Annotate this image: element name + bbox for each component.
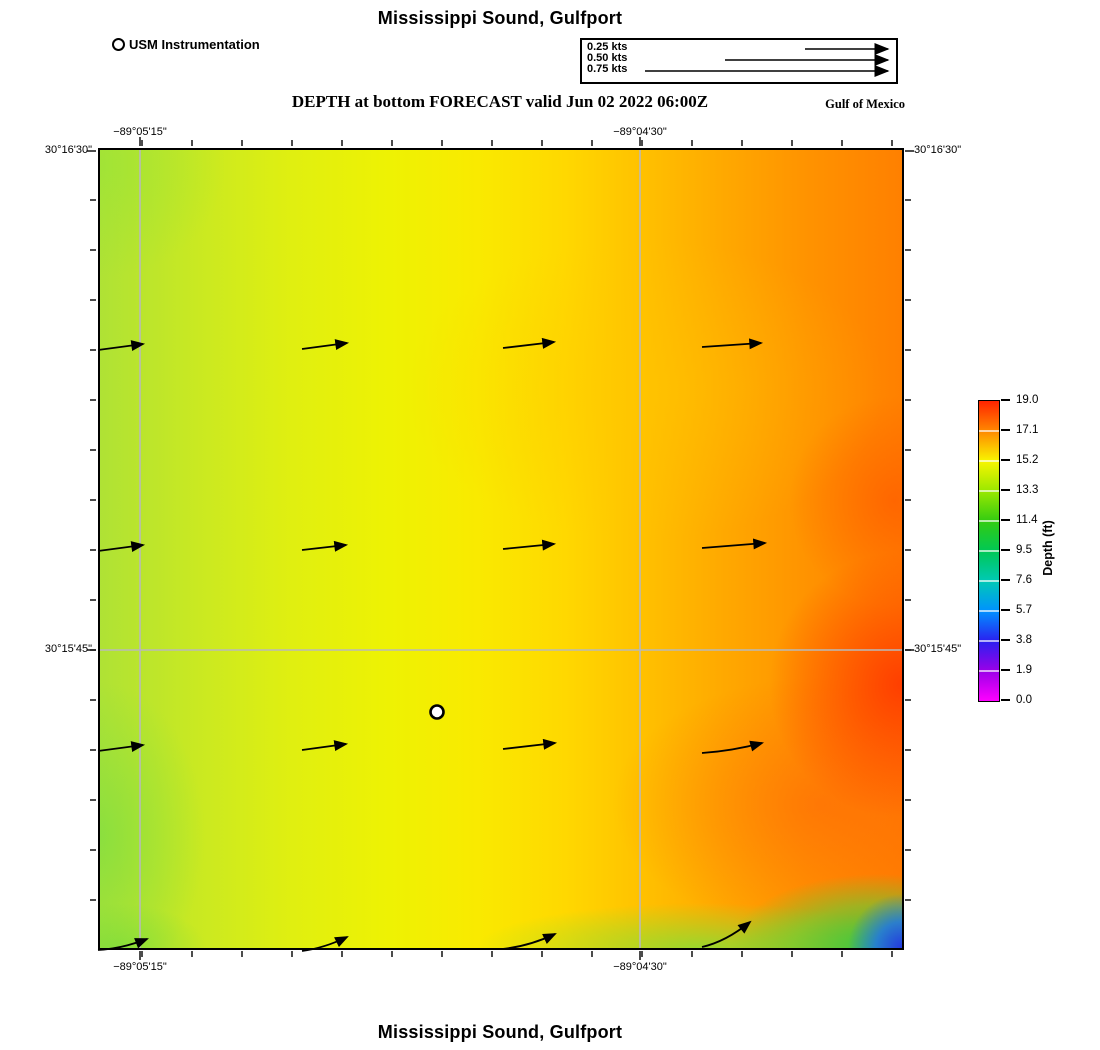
colorbar-tick [1001, 699, 1010, 701]
colorbar-level-line [979, 460, 999, 462]
colorbar-tick [1001, 669, 1010, 671]
colorbar-tick-label: 15.2 [1016, 454, 1056, 467]
colorbar-tick-label: 1.9 [1016, 664, 1056, 677]
axis-label-left-top: 30°16'30" [12, 144, 92, 156]
colorbar-tick [1001, 399, 1010, 401]
colorbar-level-line [979, 490, 999, 492]
colorbar-tick-label: 19.0 [1016, 394, 1056, 407]
colorbar-axis-label: Depth (ft) [1041, 510, 1055, 586]
colorbar-level-line [979, 610, 999, 612]
colorbar-tick [1001, 459, 1010, 461]
velocity-legend-item: 0.75 kts [587, 64, 627, 75]
axis-label-left-mid: 30°15'45" [12, 643, 92, 655]
footer-title: Mississippi Sound, Gulfport [0, 1022, 1000, 1043]
colorbar-tick [1001, 519, 1010, 521]
axis-label-bottom-right: −89°04'30" [580, 961, 700, 973]
legend-arrows [582, 40, 896, 82]
colorbar-level-line [979, 430, 999, 432]
instrument-legend-label: USM Instrumentation [129, 37, 260, 52]
colorbar-tick [1001, 549, 1010, 551]
colorbar-tick-label: 17.1 [1016, 424, 1056, 437]
colorbar-tick [1001, 429, 1010, 431]
colorbar-level-line [979, 640, 999, 642]
page-title: Mississippi Sound, Gulfport [0, 8, 1000, 29]
colorbar-tick-label: 5.7 [1016, 604, 1056, 617]
map-frame [98, 148, 904, 950]
colorbar-tick [1001, 579, 1010, 581]
colorbar-tick-label: 13.3 [1016, 484, 1056, 497]
colorbar-tick-label: 0.0 [1016, 694, 1056, 707]
colorbar: 19.017.115.213.311.49.57.65.73.81.90.0 [978, 400, 1098, 700]
colorbar-level-line [979, 550, 999, 552]
axis-label-top-right: −89°04'30" [580, 126, 700, 138]
axis-label-right-top: 30°16'30" [914, 144, 994, 156]
axis-label-bottom-left: −89°05'15" [80, 961, 200, 973]
region-label: Gulf of Mexico [800, 97, 905, 112]
instrument-legend: USM Instrumentation [112, 37, 260, 52]
figure-root: Mississippi Sound, Gulfport USM Instrume… [0, 0, 1100, 1050]
velocity-scale-legend: 0.25 kts 0.50 kts 0.75 kts [580, 38, 898, 84]
colorbar-tick-label: 3.8 [1016, 634, 1056, 647]
colorbar-gradient [978, 400, 1000, 702]
colorbar-tick [1001, 489, 1010, 491]
open-circle-icon [112, 38, 125, 51]
colorbar-level-line [979, 580, 999, 582]
axis-label-top-left: −89°05'15" [80, 126, 200, 138]
colorbar-tick [1001, 609, 1010, 611]
colorbar-tick [1001, 639, 1010, 641]
colorbar-level-line [979, 520, 999, 522]
colorbar-level-line [979, 670, 999, 672]
